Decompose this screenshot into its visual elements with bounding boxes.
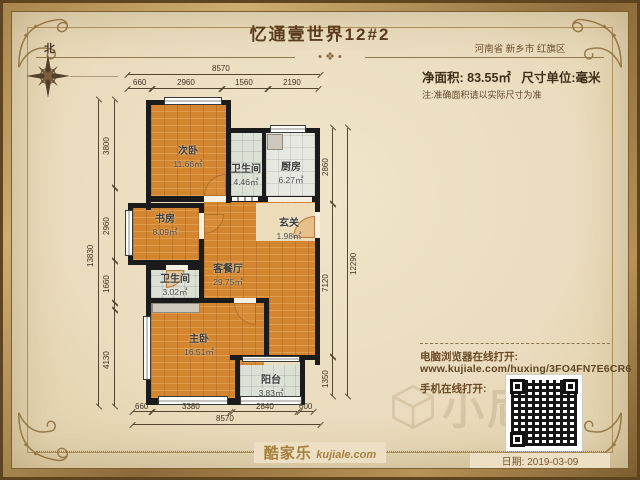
dim-line <box>222 88 268 89</box>
dim-label: 2840 <box>256 402 274 411</box>
brand-name-cn: 酷家乐 <box>264 445 312 462</box>
dim-label: 8570 <box>216 414 234 423</box>
area-note: 注:准确面积请以实际尺寸为准 <box>422 88 542 101</box>
dim-line <box>268 88 318 89</box>
dim-label: 2960 <box>177 78 195 87</box>
dim-line <box>128 88 152 89</box>
dim-label: 1350 <box>321 370 330 388</box>
door-opening <box>204 196 226 202</box>
wardrobe <box>152 303 200 313</box>
qr-finder <box>510 379 525 394</box>
dim-label: 2190 <box>283 78 301 87</box>
window <box>242 356 300 362</box>
room-label-entry: 玄关 1.98㎡ <box>258 214 320 242</box>
room-label-living: 客餐厅 29.75㎡ <box>197 260 259 288</box>
dim-label: 2860 <box>321 158 330 176</box>
dim-line <box>114 261 115 303</box>
mobile-open-label: 手机在线打开: <box>420 381 487 396</box>
dim-label: 8570 <box>212 64 230 73</box>
wall <box>146 100 151 210</box>
window <box>164 97 222 105</box>
room-label-bedroom2: 次卧 11.66㎡ <box>157 142 219 170</box>
qr-code <box>505 374 583 452</box>
dim-line <box>332 205 333 357</box>
dim-line <box>152 411 230 412</box>
dim-line <box>332 128 333 203</box>
dim-label: 4130 <box>102 351 111 369</box>
dim-line <box>332 357 333 396</box>
window <box>270 125 306 133</box>
dim-line <box>152 88 222 89</box>
fridge <box>267 134 283 150</box>
dim-line <box>114 100 115 188</box>
wall <box>264 303 269 360</box>
wall <box>128 203 204 208</box>
dim-line <box>133 424 320 425</box>
window <box>125 210 133 256</box>
share-divider <box>420 343 610 344</box>
door-opening <box>268 197 312 202</box>
dim-line <box>233 411 297 412</box>
dim-label: 3800 <box>102 137 111 155</box>
dim-line <box>114 310 115 406</box>
room-label-study: 书房 8.09㎡ <box>134 210 196 238</box>
dim-label: 12290 <box>349 253 358 275</box>
room-label-master: 主卧 16.51㎡ <box>168 330 230 358</box>
dim-label: 2960 <box>102 217 111 235</box>
room-label-balcony: 阳台 3.83㎡ <box>240 371 302 399</box>
dim-label: 13830 <box>86 245 95 267</box>
dim-line <box>300 411 313 412</box>
dim-label: 7120 <box>321 274 330 292</box>
dim-label: 660 <box>133 78 146 87</box>
unit-label: 尺寸单位:毫米 <box>521 71 600 85</box>
location-text: 河南省 新乡市 红旗区 <box>428 41 612 55</box>
room-label-bath2: 卫生间 3.02㎡ <box>144 270 206 298</box>
qr-finder <box>563 379 578 394</box>
dim-line <box>347 128 348 396</box>
net-area-text: 净面积: 83.55㎡ 尺寸单位:毫米 <box>422 67 601 86</box>
dim-label: 600 <box>299 402 312 411</box>
dim-line <box>98 100 99 406</box>
room-label-kitchen: 厨房 6.27㎡ <box>260 158 322 186</box>
dim-label: 660 <box>135 402 148 411</box>
window <box>143 316 151 380</box>
dim-label: 3380 <box>182 402 200 411</box>
divider-ornament-icon: • ❖ • <box>295 50 365 64</box>
sliding-door <box>232 197 258 201</box>
dim-line <box>128 74 320 75</box>
dim-label: 1560 <box>235 78 253 87</box>
dim-line <box>114 188 115 261</box>
net-area-value: 净面积: 83.55㎡ <box>422 71 511 85</box>
dim-label: 1660 <box>102 275 111 293</box>
date-label: 日期: 2019-03-09 <box>470 453 610 468</box>
compass-leader-line <box>70 76 118 77</box>
compass-rose-icon <box>26 54 70 98</box>
brand-domain: kujiale.com <box>316 449 376 461</box>
floorplan-page: 忆通壹世界12#2 • ❖ • 河南省 新乡市 红旗区 净面积: 83.55㎡ … <box>0 0 640 480</box>
desktop-open-label: 电脑浏览器在线打开: <box>420 349 518 364</box>
